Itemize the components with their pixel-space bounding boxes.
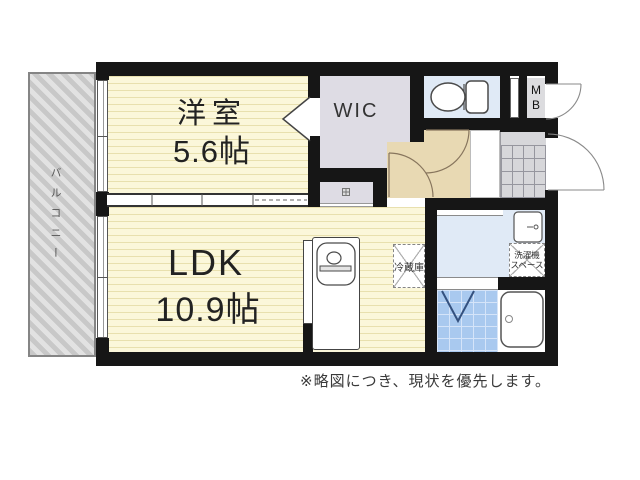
ldk-size: 10.9帖 xyxy=(108,282,308,331)
toilet-floor xyxy=(424,76,500,118)
meter-box-label-m: M xyxy=(531,83,541,98)
wall-hall-washroom xyxy=(437,198,558,210)
entrance-step xyxy=(470,130,500,198)
washer-space-box: 洗濯機 スペース xyxy=(509,243,545,277)
entrance-door-arc xyxy=(548,134,604,190)
washer-space-line1: 洗濯機 xyxy=(514,250,540,260)
shelf-icon xyxy=(342,188,350,196)
wall-below-toilet xyxy=(410,118,500,130)
wall-right-main xyxy=(545,190,558,366)
wall-right-top xyxy=(545,62,558,84)
wic-label: WIC xyxy=(316,100,396,123)
storage-niche-sill xyxy=(320,203,373,207)
sliding-partition xyxy=(107,193,308,207)
hallway-floor-main xyxy=(387,142,470,198)
entrance-tile-grid xyxy=(501,145,546,198)
wall-left-top xyxy=(96,62,109,80)
kitchen-counter xyxy=(312,237,360,350)
wall-niche-right xyxy=(373,168,387,207)
window-ldk xyxy=(97,216,108,338)
mb-door-arc xyxy=(546,84,581,119)
wall-right-upper xyxy=(545,132,558,138)
wall-ldk-wetarea xyxy=(425,198,437,352)
pipe-space xyxy=(510,78,519,118)
wall-bottom xyxy=(96,352,558,366)
meter-box-label-b: B xyxy=(532,98,540,113)
wall-below-mb xyxy=(500,118,558,132)
washroom-door-track xyxy=(437,210,503,216)
bathtub-icon xyxy=(501,292,543,347)
western-room-size: 5.6帖 xyxy=(122,126,302,171)
meter-box: M B xyxy=(527,78,545,118)
wall-top xyxy=(96,62,558,76)
washer-space-label: 洗濯機 スペース xyxy=(511,250,544,270)
wall-shaft-right xyxy=(519,62,527,118)
wall-westernroom-wic-upper xyxy=(308,76,320,98)
wall-wic-right xyxy=(410,76,424,142)
caption-text: ※略図につき、現状を優先します。 xyxy=(300,370,551,391)
ldk-name: LDK xyxy=(116,242,296,284)
bath-door-track xyxy=(437,277,498,290)
wall-left-bottom xyxy=(96,338,109,366)
bathroom-tile-floor xyxy=(437,290,498,352)
washer-space-line2: スペース xyxy=(511,260,544,270)
refrigerator-box: 冷蔵庫 xyxy=(393,244,425,288)
floorplan-canvas: M B 冷蔵庫 洗濯機 スペース xyxy=(0,0,640,480)
balcony-label: バルコニー xyxy=(47,152,63,282)
entrance-tile-area xyxy=(500,132,546,198)
window-western-room xyxy=(97,80,108,192)
refrigerator-label: 冷蔵庫 xyxy=(394,259,424,274)
wall-washroom-bath xyxy=(498,277,545,290)
